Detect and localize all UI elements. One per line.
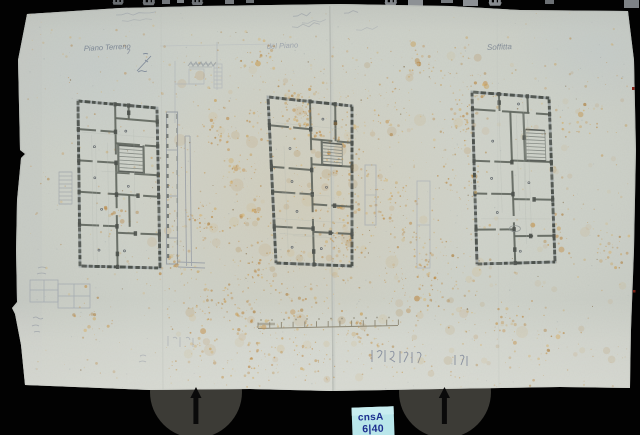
svg-text:6|40: 6|40 (362, 423, 384, 435)
svg-text:cnsA: cnsA (358, 412, 384, 424)
